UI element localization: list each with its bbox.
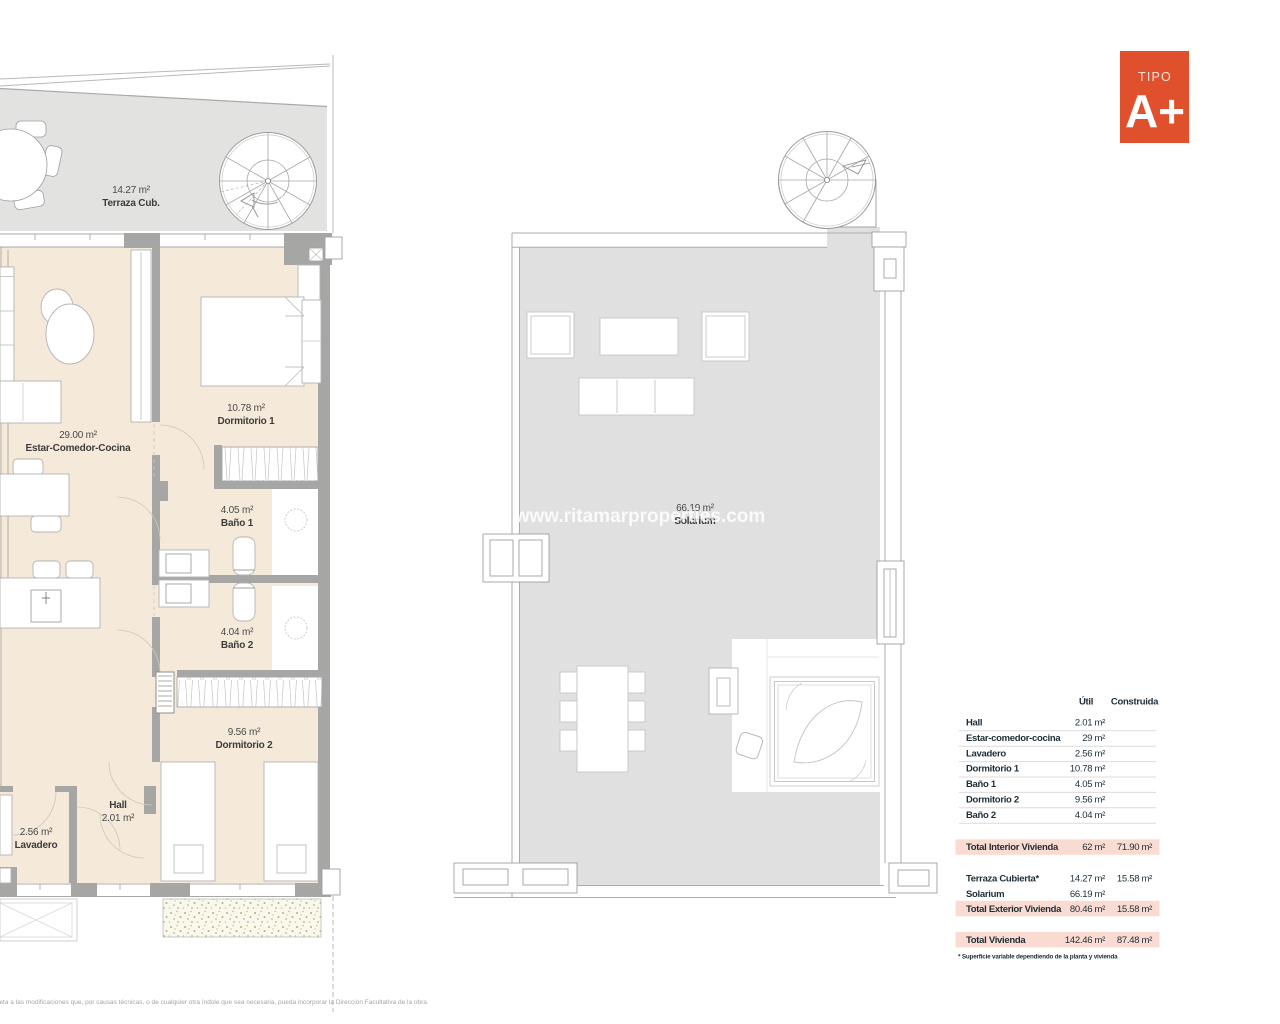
svg-text:Construida: Construida (1111, 697, 1159, 708)
svg-text:10.78 m²: 10.78 m² (227, 403, 266, 414)
svg-text:Dormitorio 1: Dormitorio 1 (966, 764, 1020, 775)
svg-text:Hall: Hall (966, 718, 982, 729)
svg-text:4.04 m²: 4.04 m² (221, 627, 254, 638)
svg-text:Estar-Comedor-Cocina: Estar-Comedor-Cocina (26, 443, 132, 454)
svg-text:Total Vivienda: Total Vivienda (966, 935, 1026, 946)
svg-text:62 m²: 62 m² (1082, 842, 1105, 853)
svg-text:Total Exterior Vivienda: Total Exterior Vivienda (966, 904, 1062, 915)
svg-text:Dormitorio 1: Dormitorio 1 (217, 416, 275, 427)
svg-text:2.56 m²: 2.56 m² (20, 827, 53, 838)
svg-text:71.90 m²: 71.90 m² (1117, 842, 1152, 853)
svg-text:15.58 m²: 15.58 m² (1117, 904, 1152, 915)
svg-text:Baño 2: Baño 2 (221, 640, 254, 651)
svg-text:Terraza Cub.: Terraza Cub. (102, 198, 160, 209)
svg-text:66.19 m²: 66.19 m² (1070, 889, 1105, 900)
svg-text:Solarium: Solarium (966, 889, 1004, 900)
svg-text:Estar-comedor-cocina: Estar-comedor-cocina (966, 733, 1061, 744)
svg-text:29 m²: 29 m² (1082, 733, 1105, 744)
svg-text:4.04 m²: 4.04 m² (1075, 810, 1105, 821)
svg-text:Baño 1: Baño 1 (221, 518, 254, 529)
svg-text:Total Interior Vivienda: Total Interior Vivienda (966, 842, 1059, 853)
svg-text:14.27 m²: 14.27 m² (1070, 873, 1105, 884)
svg-text:Lavadero: Lavadero (15, 840, 58, 851)
svg-text:Dormitorio 2: Dormitorio 2 (966, 795, 1019, 806)
svg-text:2.01 m²: 2.01 m² (102, 813, 135, 824)
svg-text:Dormitorio 2: Dormitorio 2 (215, 740, 273, 751)
svg-text:9.56 m²: 9.56 m² (228, 727, 261, 738)
svg-text:* Superficie variable dependie: * Superficie variable dependiendo de la … (958, 954, 1118, 961)
svg-text:Hall: Hall (109, 800, 127, 811)
svg-text:2.01 m²: 2.01 m² (1075, 718, 1105, 729)
svg-text:29.00 m²: 29.00 m² (59, 430, 98, 441)
svg-text:14.27 m²: 14.27 m² (112, 185, 151, 196)
svg-text:TIPO: TIPO (1138, 70, 1172, 84)
svg-text:Baño 2: Baño 2 (966, 810, 996, 821)
svg-text:15.58 m²: 15.58 m² (1117, 873, 1152, 884)
svg-text:www.ritamarproperties.com: www.ritamarproperties.com (514, 506, 766, 527)
svg-text:jeta a las modificaciones que,: jeta a las modificaciones que, por causa… (0, 999, 429, 1006)
svg-text:80.46 m²: 80.46 m² (1070, 904, 1105, 915)
svg-text:10.78 m²: 10.78 m² (1070, 764, 1105, 775)
svg-text:Baño 1: Baño 1 (966, 779, 997, 790)
svg-text:4.05 m²: 4.05 m² (1075, 779, 1105, 790)
svg-text:Útil: Útil (1079, 696, 1093, 708)
svg-text:Terraza Cubierta*: Terraza Cubierta* (966, 873, 1039, 884)
svg-text:142.46 m²: 142.46 m² (1065, 935, 1105, 946)
svg-text:Lavadero: Lavadero (966, 748, 1006, 759)
svg-text:9.56 m²: 9.56 m² (1075, 795, 1105, 806)
svg-text:A+: A+ (1125, 85, 1185, 137)
svg-text:4.05 m²: 4.05 m² (221, 505, 254, 516)
svg-text:87.48 m²: 87.48 m² (1117, 935, 1152, 946)
svg-text:2.56 m²: 2.56 m² (1075, 748, 1105, 759)
